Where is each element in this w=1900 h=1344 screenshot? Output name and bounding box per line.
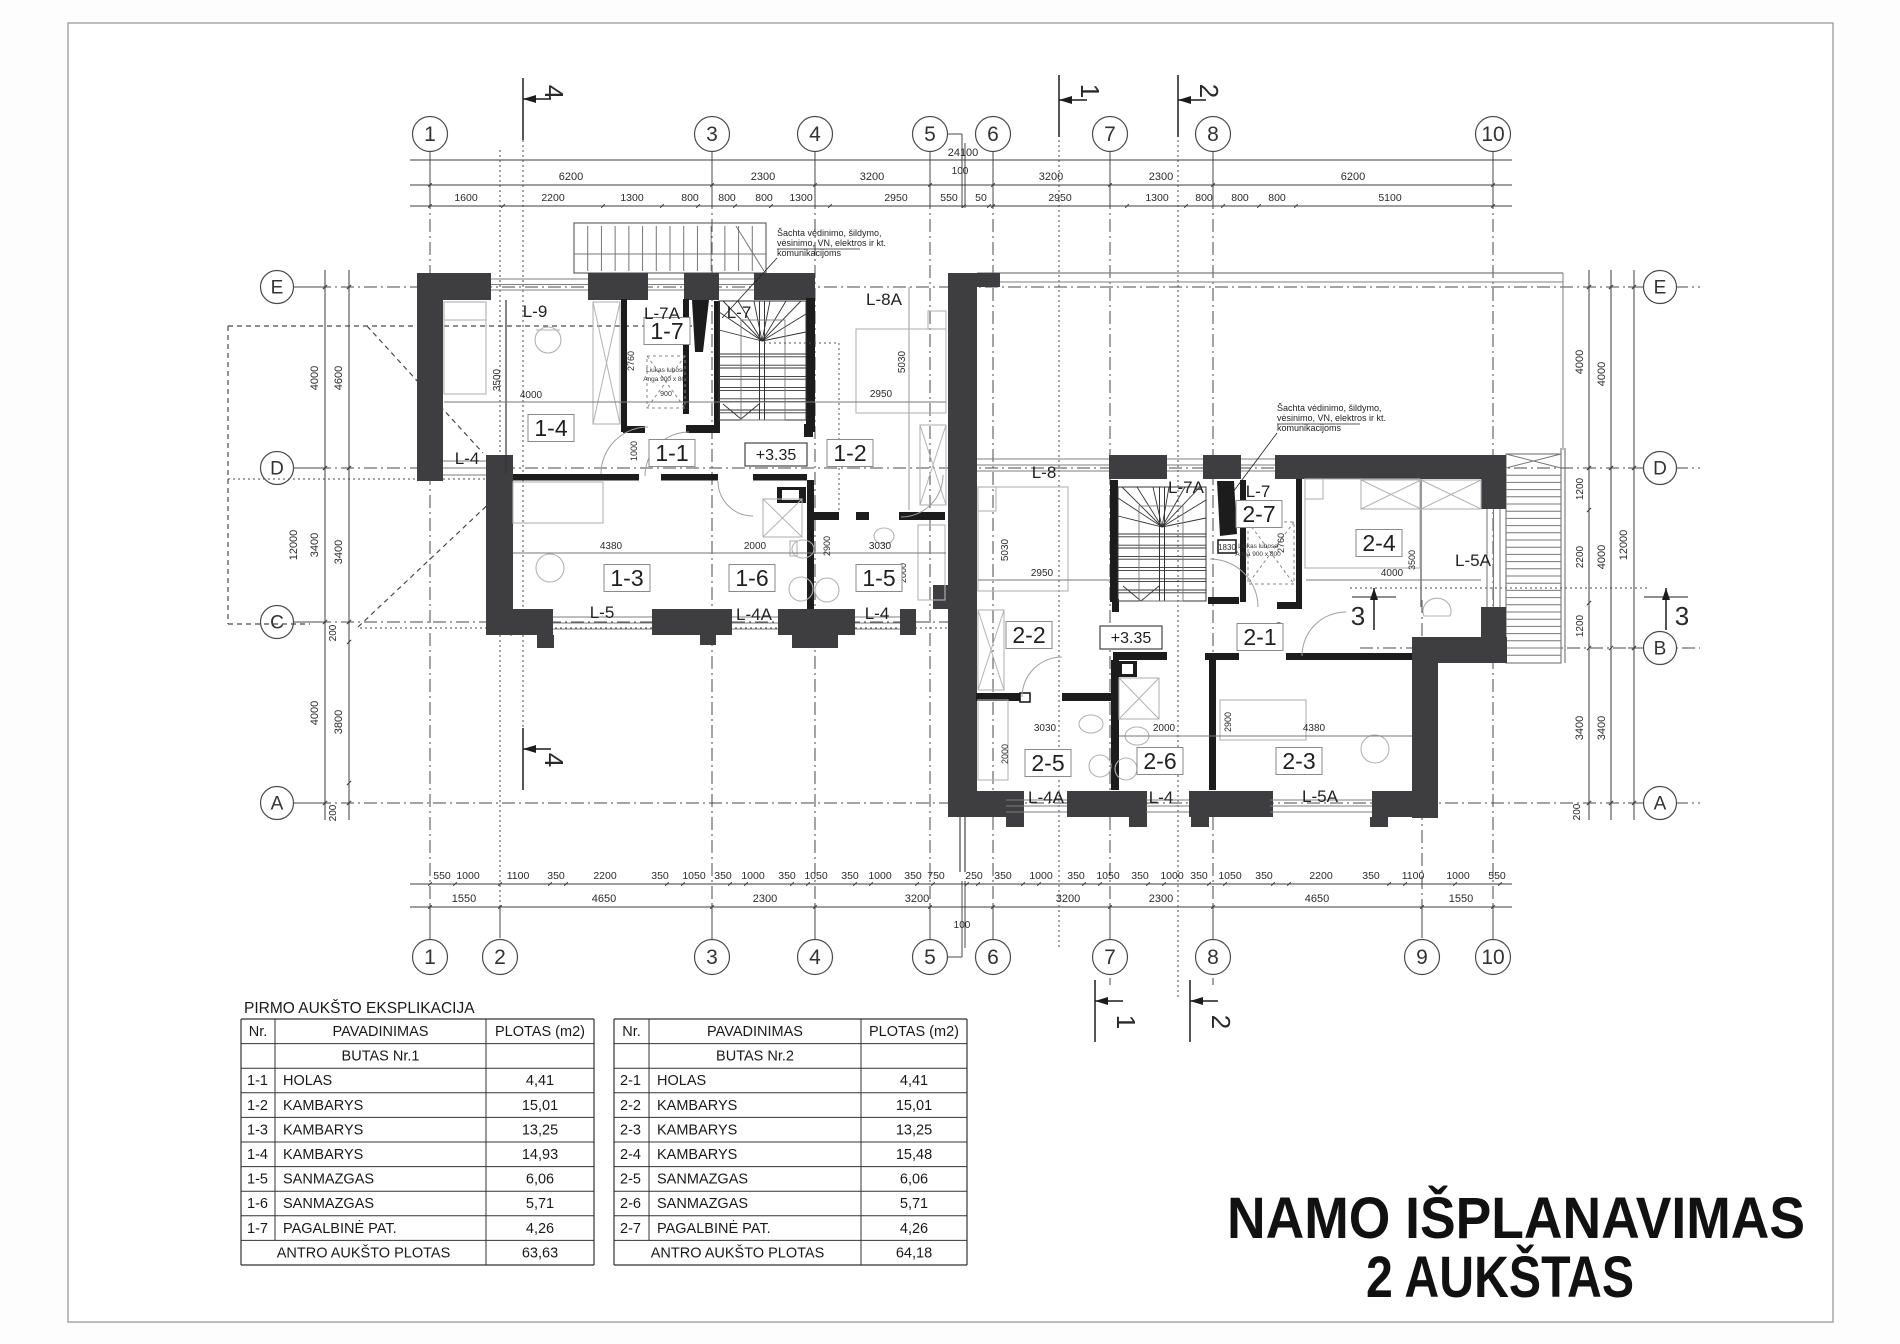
svg-text:3500: 3500 (492, 368, 503, 391)
svg-text:4380: 4380 (600, 541, 623, 552)
svg-text:+3.35: +3.35 (1111, 630, 1152, 647)
svg-text:2: 2 (1194, 84, 1224, 98)
svg-text:2000: 2000 (1000, 744, 1010, 764)
svg-text:1-7: 1-7 (247, 1221, 268, 1237)
svg-text:1100: 1100 (507, 870, 530, 882)
svg-text:2-3: 2-3 (620, 1122, 641, 1138)
svg-text:1-1: 1-1 (247, 1073, 268, 1089)
svg-text:350: 350 (778, 870, 796, 882)
svg-text:6200: 6200 (1341, 171, 1365, 183)
svg-text:1-6: 1-6 (247, 1196, 268, 1212)
svg-text:2760: 2760 (626, 351, 636, 371)
svg-text:2-7: 2-7 (620, 1221, 641, 1237)
svg-text:2-6: 2-6 (1143, 748, 1176, 774)
svg-text:4: 4 (539, 753, 569, 767)
svg-text:4: 4 (809, 123, 821, 146)
svg-text:2300: 2300 (1149, 171, 1173, 183)
svg-text:PAVADINIMAS: PAVADINIMAS (707, 1024, 803, 1040)
svg-text:4000: 4000 (1596, 545, 1608, 569)
svg-text:3030: 3030 (869, 541, 892, 552)
svg-text:900: 900 (660, 391, 672, 398)
svg-text:1000: 1000 (629, 441, 639, 461)
svg-text:2300: 2300 (1149, 893, 1173, 905)
svg-text:7: 7 (1104, 123, 1116, 146)
svg-text:15,48: 15,48 (896, 1147, 932, 1163)
svg-text:PLOTAS (m2): PLOTAS (m2) (495, 1024, 585, 1040)
svg-text:4000: 4000 (309, 701, 321, 725)
svg-text:SANMAZGAS: SANMAZGAS (283, 1172, 374, 1188)
svg-text:1300: 1300 (789, 192, 813, 204)
svg-text:4650: 4650 (592, 893, 616, 905)
svg-text:2 AUKŠTAS: 2 AUKŠTAS (1366, 1245, 1634, 1310)
svg-text:350: 350 (651, 870, 669, 882)
svg-text:4000: 4000 (1381, 568, 1404, 579)
svg-text:2-1: 2-1 (620, 1073, 641, 1089)
svg-text:1-2: 1-2 (247, 1098, 268, 1114)
svg-text:BUTAS Nr.1: BUTAS Nr.1 (342, 1049, 420, 1065)
svg-text:14,93: 14,93 (522, 1147, 558, 1163)
svg-text:2-2: 2-2 (620, 1098, 641, 1114)
svg-text:KAMBARYS: KAMBARYS (657, 1122, 737, 1138)
svg-text:vėsinimo, VN, elektros ir kt.: vėsinimo, VN, elektros ir kt. (1277, 413, 1386, 423)
svg-text:3: 3 (1675, 601, 1689, 631)
svg-text:350: 350 (841, 870, 859, 882)
svg-text:vėsinimo, VN, elektros ir kt.: vėsinimo, VN, elektros ir kt. (777, 238, 886, 248)
svg-text:PIRMO AUKŠTO EKSPLIKACIJA: PIRMO AUKŠTO EKSPLIKACIJA (244, 1000, 475, 1017)
svg-text:5: 5 (924, 123, 936, 146)
svg-text:13,25: 13,25 (522, 1122, 558, 1138)
svg-text:4000: 4000 (1596, 362, 1608, 386)
svg-text:1-5: 1-5 (247, 1172, 268, 1188)
svg-text:12000: 12000 (1618, 530, 1630, 561)
svg-text:A: A (1654, 794, 1667, 815)
svg-text:8: 8 (1207, 946, 1219, 969)
svg-text:7: 7 (1104, 946, 1116, 969)
svg-text:800: 800 (1268, 192, 1286, 204)
svg-text:350: 350 (1067, 870, 1085, 882)
svg-text:1-5: 1-5 (862, 565, 895, 591)
svg-text:2200: 2200 (541, 192, 565, 204)
svg-text:2-5: 2-5 (1031, 750, 1064, 776)
svg-text:3: 3 (1351, 601, 1365, 631)
svg-text:L-4: L-4 (455, 449, 480, 468)
svg-text:PAVADINIMAS: PAVADINIMAS (333, 1024, 429, 1040)
svg-text:550: 550 (1488, 870, 1506, 882)
svg-text:Nr.: Nr. (249, 1024, 268, 1040)
svg-text:1-3: 1-3 (247, 1122, 268, 1138)
svg-text:HOLAS: HOLAS (657, 1073, 706, 1089)
svg-text:2950: 2950 (1048, 192, 1072, 204)
svg-text:L-4A: L-4A (1028, 788, 1065, 807)
svg-text:L-8: L-8 (1032, 463, 1057, 482)
svg-text:1000: 1000 (1446, 870, 1470, 882)
svg-text:D: D (270, 459, 284, 480)
svg-text:L-7A: L-7A (644, 304, 681, 323)
svg-text:Liukas lubose: Liukas lubose (1238, 543, 1278, 550)
svg-text:3400: 3400 (1574, 716, 1586, 740)
svg-text:63,63: 63,63 (522, 1245, 558, 1261)
svg-text:2: 2 (494, 946, 506, 969)
svg-text:1: 1 (424, 946, 436, 969)
svg-text:Anga 900 x 800: Anga 900 x 800 (643, 376, 689, 383)
svg-text:4: 4 (809, 946, 821, 969)
svg-text:350: 350 (1190, 870, 1208, 882)
svg-text:550: 550 (940, 192, 958, 204)
svg-text:L-9: L-9 (523, 302, 548, 321)
svg-text:200: 200 (1572, 803, 1583, 820)
svg-text:L-7A: L-7A (1168, 478, 1205, 497)
svg-text:komunikacijoms: komunikacijoms (777, 248, 842, 258)
svg-text:L-7: L-7 (727, 303, 752, 322)
svg-text:1050: 1050 (1218, 870, 1242, 882)
svg-text:4,41: 4,41 (900, 1073, 928, 1089)
svg-text:13,25: 13,25 (896, 1122, 932, 1138)
svg-text:Liukas lubose: Liukas lubose (646, 367, 686, 374)
svg-text:1550: 1550 (452, 893, 476, 905)
svg-text:3500: 3500 (1407, 550, 1417, 570)
svg-text:250: 250 (965, 870, 983, 882)
svg-text:100: 100 (952, 166, 969, 177)
svg-text:800: 800 (681, 192, 699, 204)
svg-text:2-4: 2-4 (620, 1147, 641, 1163)
svg-text:3: 3 (706, 946, 718, 969)
svg-text:10: 10 (1481, 946, 1504, 969)
svg-text:1-3: 1-3 (610, 565, 643, 591)
svg-text:komunikacijoms: komunikacijoms (1277, 423, 1342, 433)
svg-text:4600: 4600 (333, 366, 345, 390)
svg-text:2300: 2300 (753, 893, 777, 905)
svg-text:1830: 1830 (1218, 543, 1236, 552)
svg-text:15,01: 15,01 (522, 1098, 558, 1114)
svg-text:100: 100 (954, 920, 971, 931)
svg-text:24100: 24100 (948, 147, 979, 159)
svg-text:KAMBARYS: KAMBARYS (283, 1098, 363, 1114)
svg-text:L-5: L-5 (590, 603, 615, 622)
svg-text:KAMBARYS: KAMBARYS (657, 1098, 737, 1114)
svg-text:2-1: 2-1 (1243, 624, 1276, 650)
svg-text:ANTRO AUKŠTO PLOTAS: ANTRO AUKŠTO PLOTAS (277, 1244, 451, 1261)
svg-text:1200: 1200 (1575, 614, 1586, 637)
svg-text:KAMBARYS: KAMBARYS (283, 1122, 363, 1138)
svg-text:E: E (1654, 278, 1667, 299)
svg-text:3200: 3200 (1056, 893, 1080, 905)
svg-text:Anga 900 x 800: Anga 900 x 800 (1235, 551, 1281, 558)
svg-text:1000: 1000 (1029, 870, 1053, 882)
svg-text:1-1: 1-1 (655, 440, 688, 466)
svg-text:1-4: 1-4 (534, 415, 567, 441)
svg-text:750: 750 (927, 870, 945, 882)
svg-text:E: E (271, 278, 284, 299)
svg-text:350: 350 (994, 870, 1012, 882)
svg-text:3200: 3200 (1039, 171, 1063, 183)
svg-text:Nr.: Nr. (622, 1024, 641, 1040)
svg-text:Šachta vėdinimo, šildymo,: Šachta vėdinimo, šildymo, (777, 228, 882, 238)
svg-text:1: 1 (424, 123, 436, 146)
svg-text:1000: 1000 (1160, 870, 1184, 882)
svg-text:2-3: 2-3 (1282, 748, 1315, 774)
svg-text:1050: 1050 (804, 870, 828, 882)
svg-text:L-5A: L-5A (1455, 551, 1492, 570)
svg-text:200: 200 (328, 624, 339, 641)
svg-text:2900: 2900 (822, 536, 832, 556)
svg-text:1-2: 1-2 (833, 440, 866, 466)
svg-text:4000: 4000 (520, 390, 543, 401)
svg-text:1000: 1000 (868, 870, 892, 882)
svg-text:4,26: 4,26 (900, 1221, 928, 1237)
svg-text:4,26: 4,26 (526, 1221, 554, 1237)
svg-text:SANMAZGAS: SANMAZGAS (657, 1172, 748, 1188)
svg-text:B: B (1654, 639, 1667, 660)
svg-text:L-8A: L-8A (866, 290, 903, 309)
svg-text:2000: 2000 (1153, 723, 1176, 734)
svg-text:Šachta vėdinimo, šildymo,: Šachta vėdinimo, šildymo, (1277, 403, 1382, 413)
svg-text:2950: 2950 (870, 389, 893, 400)
svg-text:4,41: 4,41 (526, 1073, 554, 1089)
svg-text:1: 1 (1075, 84, 1105, 98)
svg-text:2-2: 2-2 (1012, 622, 1045, 648)
svg-text:L-4: L-4 (865, 604, 890, 623)
svg-text:5: 5 (924, 946, 936, 969)
svg-text:PLOTAS (m2): PLOTAS (m2) (869, 1024, 959, 1040)
svg-text:5,71: 5,71 (526, 1196, 554, 1212)
svg-text:PAGALBINĖ PAT.: PAGALBINĖ PAT. (657, 1219, 771, 1237)
svg-text:5030: 5030 (897, 350, 908, 373)
svg-text:L-7: L-7 (1246, 482, 1271, 501)
svg-text:HOLAS: HOLAS (283, 1073, 332, 1089)
svg-text:4000: 4000 (1574, 350, 1586, 374)
svg-text:SANMAZGAS: SANMAZGAS (283, 1196, 374, 1212)
svg-text:1050: 1050 (682, 870, 706, 882)
svg-text:3400: 3400 (309, 533, 321, 557)
svg-text:A: A (271, 794, 284, 815)
svg-text:1000: 1000 (741, 870, 765, 882)
svg-text:1-4: 1-4 (247, 1147, 268, 1163)
svg-text:L-5A: L-5A (1302, 787, 1339, 806)
svg-text:2-6: 2-6 (620, 1196, 641, 1212)
svg-text:2200: 2200 (1309, 870, 1333, 882)
svg-text:10: 10 (1481, 123, 1504, 146)
svg-text:15,01: 15,01 (896, 1098, 932, 1114)
svg-text:4: 4 (539, 85, 569, 99)
svg-text:1000: 1000 (456, 870, 480, 882)
svg-text:3200: 3200 (860, 171, 884, 183)
svg-text:350: 350 (904, 870, 922, 882)
svg-text:2-5: 2-5 (620, 1172, 641, 1188)
svg-text:5,71: 5,71 (900, 1196, 928, 1212)
svg-text:9: 9 (1416, 946, 1428, 969)
svg-text:800: 800 (1195, 192, 1213, 204)
svg-text:3030: 3030 (1034, 723, 1057, 734)
svg-text:8: 8 (1207, 123, 1219, 146)
svg-text:1050: 1050 (1096, 870, 1120, 882)
svg-text:2: 2 (1206, 1015, 1236, 1029)
svg-text:1300: 1300 (620, 192, 644, 204)
svg-text:550: 550 (433, 870, 451, 882)
svg-text:2900: 2900 (1223, 712, 1233, 732)
svg-text:C: C (270, 613, 284, 634)
svg-text:PAGALBINĖ PAT.: PAGALBINĖ PAT. (283, 1219, 397, 1237)
svg-text:800: 800 (718, 192, 736, 204)
svg-text:L-4: L-4 (1149, 788, 1174, 807)
svg-text:800: 800 (755, 192, 773, 204)
svg-text:2-4: 2-4 (1362, 530, 1395, 556)
svg-text:350: 350 (1362, 870, 1380, 882)
svg-text:3400: 3400 (1596, 716, 1608, 740)
svg-text:5100: 5100 (1378, 192, 1402, 204)
svg-text:2-7: 2-7 (1242, 501, 1275, 527)
svg-text:350: 350 (714, 870, 732, 882)
svg-text:NAMO IŠPLANAVIMAS: NAMO IŠPLANAVIMAS (1227, 1186, 1805, 1251)
svg-text:+3.35: +3.35 (756, 447, 797, 464)
svg-text:6,06: 6,06 (526, 1172, 554, 1188)
svg-text:6: 6 (987, 946, 999, 969)
svg-text:2300: 2300 (751, 171, 775, 183)
svg-text:SANMAZGAS: SANMAZGAS (657, 1196, 748, 1212)
svg-text:4000: 4000 (309, 366, 321, 390)
svg-text:12000: 12000 (288, 530, 300, 561)
svg-text:BUTAS Nr.2: BUTAS Nr.2 (716, 1049, 794, 1065)
svg-text:2950: 2950 (884, 192, 908, 204)
svg-text:5030: 5030 (1000, 538, 1011, 561)
svg-text:3200: 3200 (905, 893, 929, 905)
svg-text:KAMBARYS: KAMBARYS (283, 1147, 363, 1163)
svg-text:1: 1 (1111, 1015, 1141, 1029)
svg-text:2200: 2200 (593, 870, 617, 882)
svg-text:1550: 1550 (1449, 893, 1473, 905)
svg-text:4650: 4650 (1305, 893, 1329, 905)
svg-text:ANTRO AUKŠTO PLOTAS: ANTRO AUKŠTO PLOTAS (651, 1244, 825, 1261)
svg-text:KAMBARYS: KAMBARYS (657, 1147, 737, 1163)
svg-text:3800: 3800 (333, 710, 345, 734)
svg-text:50: 50 (975, 192, 987, 204)
svg-text:6,06: 6,06 (900, 1172, 928, 1188)
svg-text:3: 3 (706, 123, 718, 146)
svg-text:6200: 6200 (559, 171, 583, 183)
svg-text:D: D (1653, 459, 1667, 480)
svg-text:1300: 1300 (1145, 192, 1169, 204)
svg-text:64,18: 64,18 (896, 1245, 932, 1261)
svg-text:2000: 2000 (744, 541, 767, 552)
svg-text:2200: 2200 (1575, 545, 1586, 568)
svg-text:800: 800 (1231, 192, 1249, 204)
svg-text:1-6: 1-6 (735, 565, 768, 591)
svg-text:4380: 4380 (1303, 723, 1326, 734)
svg-text:350: 350 (547, 870, 565, 882)
svg-text:1200: 1200 (1575, 477, 1586, 500)
svg-text:6: 6 (987, 123, 999, 146)
svg-text:L-4A: L-4A (736, 605, 773, 624)
svg-text:2950: 2950 (1031, 568, 1054, 579)
svg-text:200: 200 (328, 804, 339, 821)
svg-text:3400: 3400 (333, 540, 345, 564)
svg-text:350: 350 (1255, 870, 1273, 882)
svg-text:1600: 1600 (454, 192, 478, 204)
svg-text:1100: 1100 (1402, 870, 1425, 882)
svg-text:350: 350 (1131, 870, 1149, 882)
